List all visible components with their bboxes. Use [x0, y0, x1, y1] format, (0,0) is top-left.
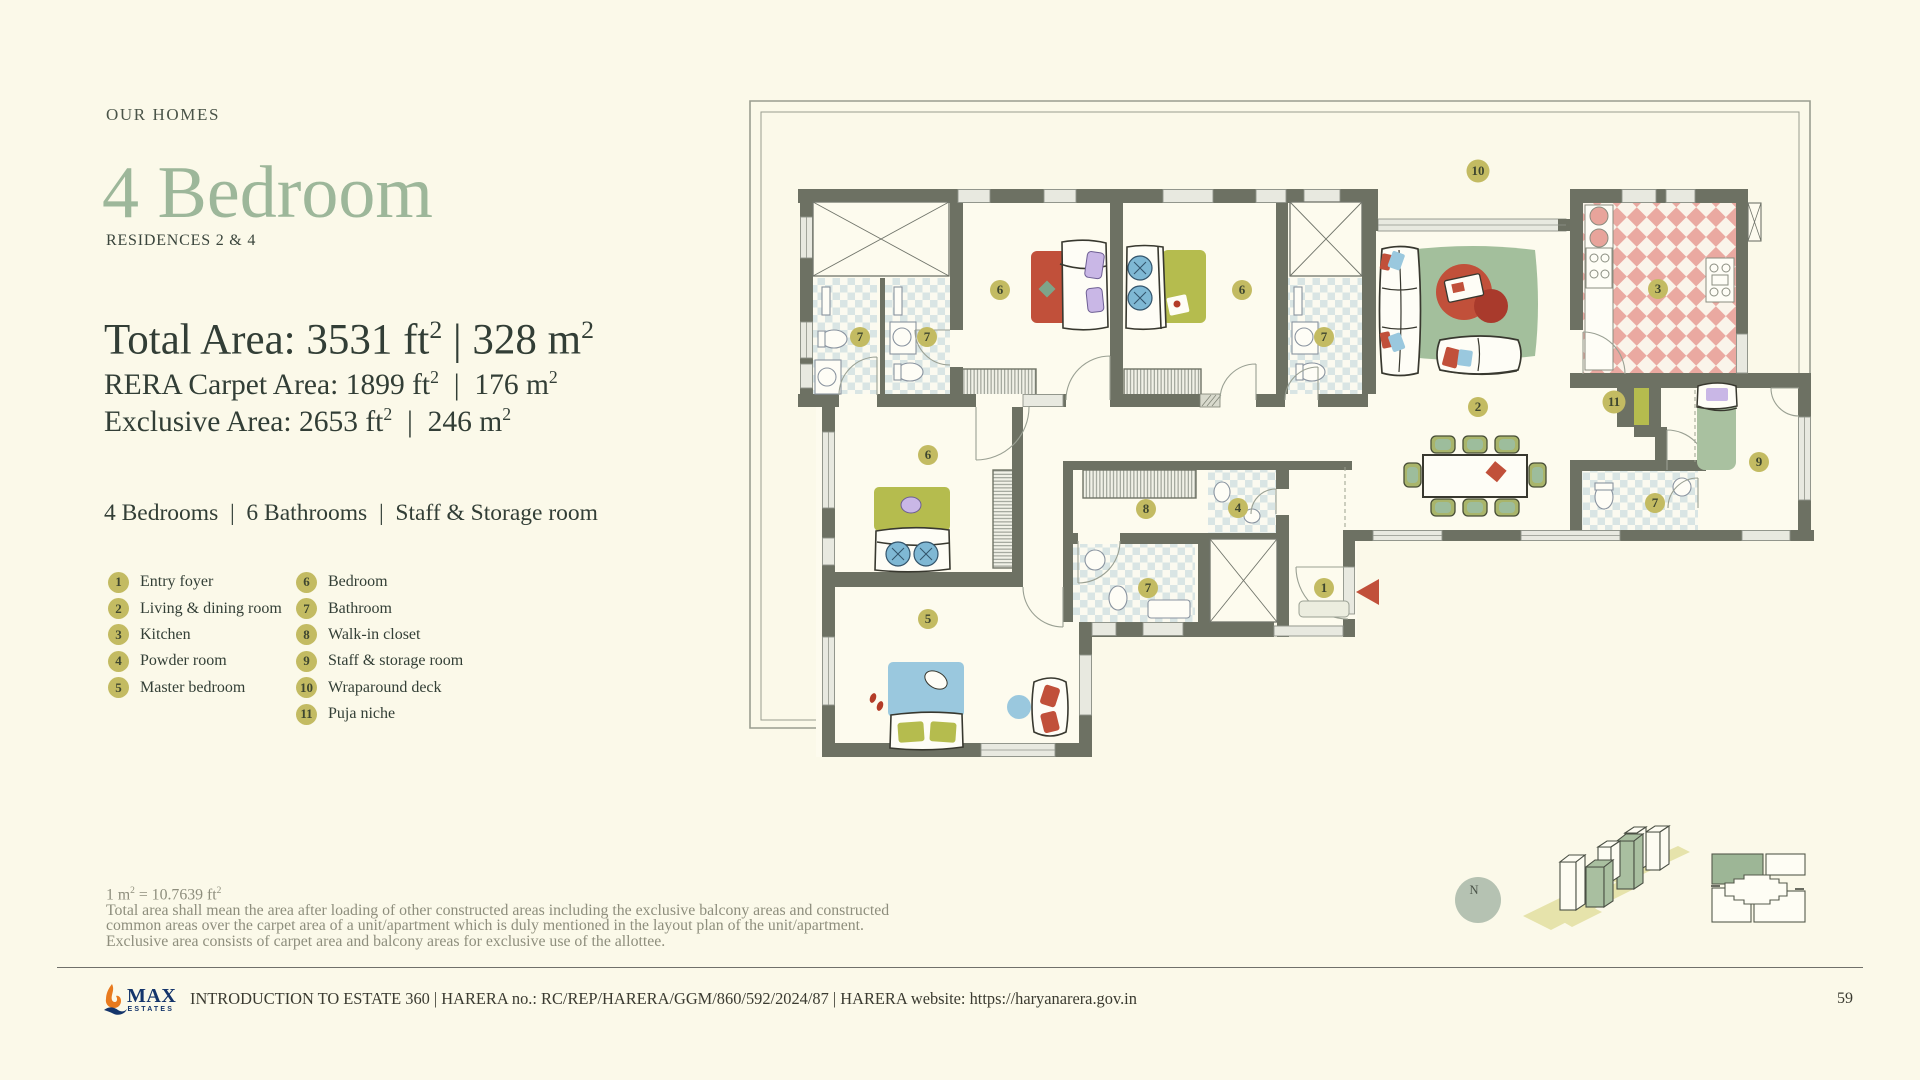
svg-text:7: 7 — [924, 329, 931, 344]
svg-text:1: 1 — [1321, 580, 1328, 595]
svg-text:4: 4 — [1235, 500, 1242, 515]
svg-text:7: 7 — [1652, 495, 1659, 510]
svg-text:11: 11 — [1608, 394, 1620, 409]
svg-text:3: 3 — [1655, 281, 1662, 296]
svg-text:ESTATES: ESTATES — [128, 1006, 175, 1013]
svg-text:N: N — [1469, 883, 1478, 897]
svg-text:7: 7 — [1145, 580, 1152, 595]
svg-text:6: 6 — [1239, 282, 1246, 297]
svg-text:6: 6 — [925, 447, 932, 462]
svg-text:5: 5 — [925, 611, 932, 626]
svg-text:MAX: MAX — [127, 985, 176, 1007]
svg-text:7: 7 — [857, 329, 864, 344]
svg-text:9: 9 — [1756, 454, 1763, 469]
svg-text:6: 6 — [997, 282, 1004, 297]
svg-text:8: 8 — [1143, 501, 1150, 516]
svg-text:7: 7 — [1321, 329, 1328, 344]
svg-text:10: 10 — [1472, 163, 1485, 178]
svg-text:2: 2 — [1475, 399, 1482, 414]
